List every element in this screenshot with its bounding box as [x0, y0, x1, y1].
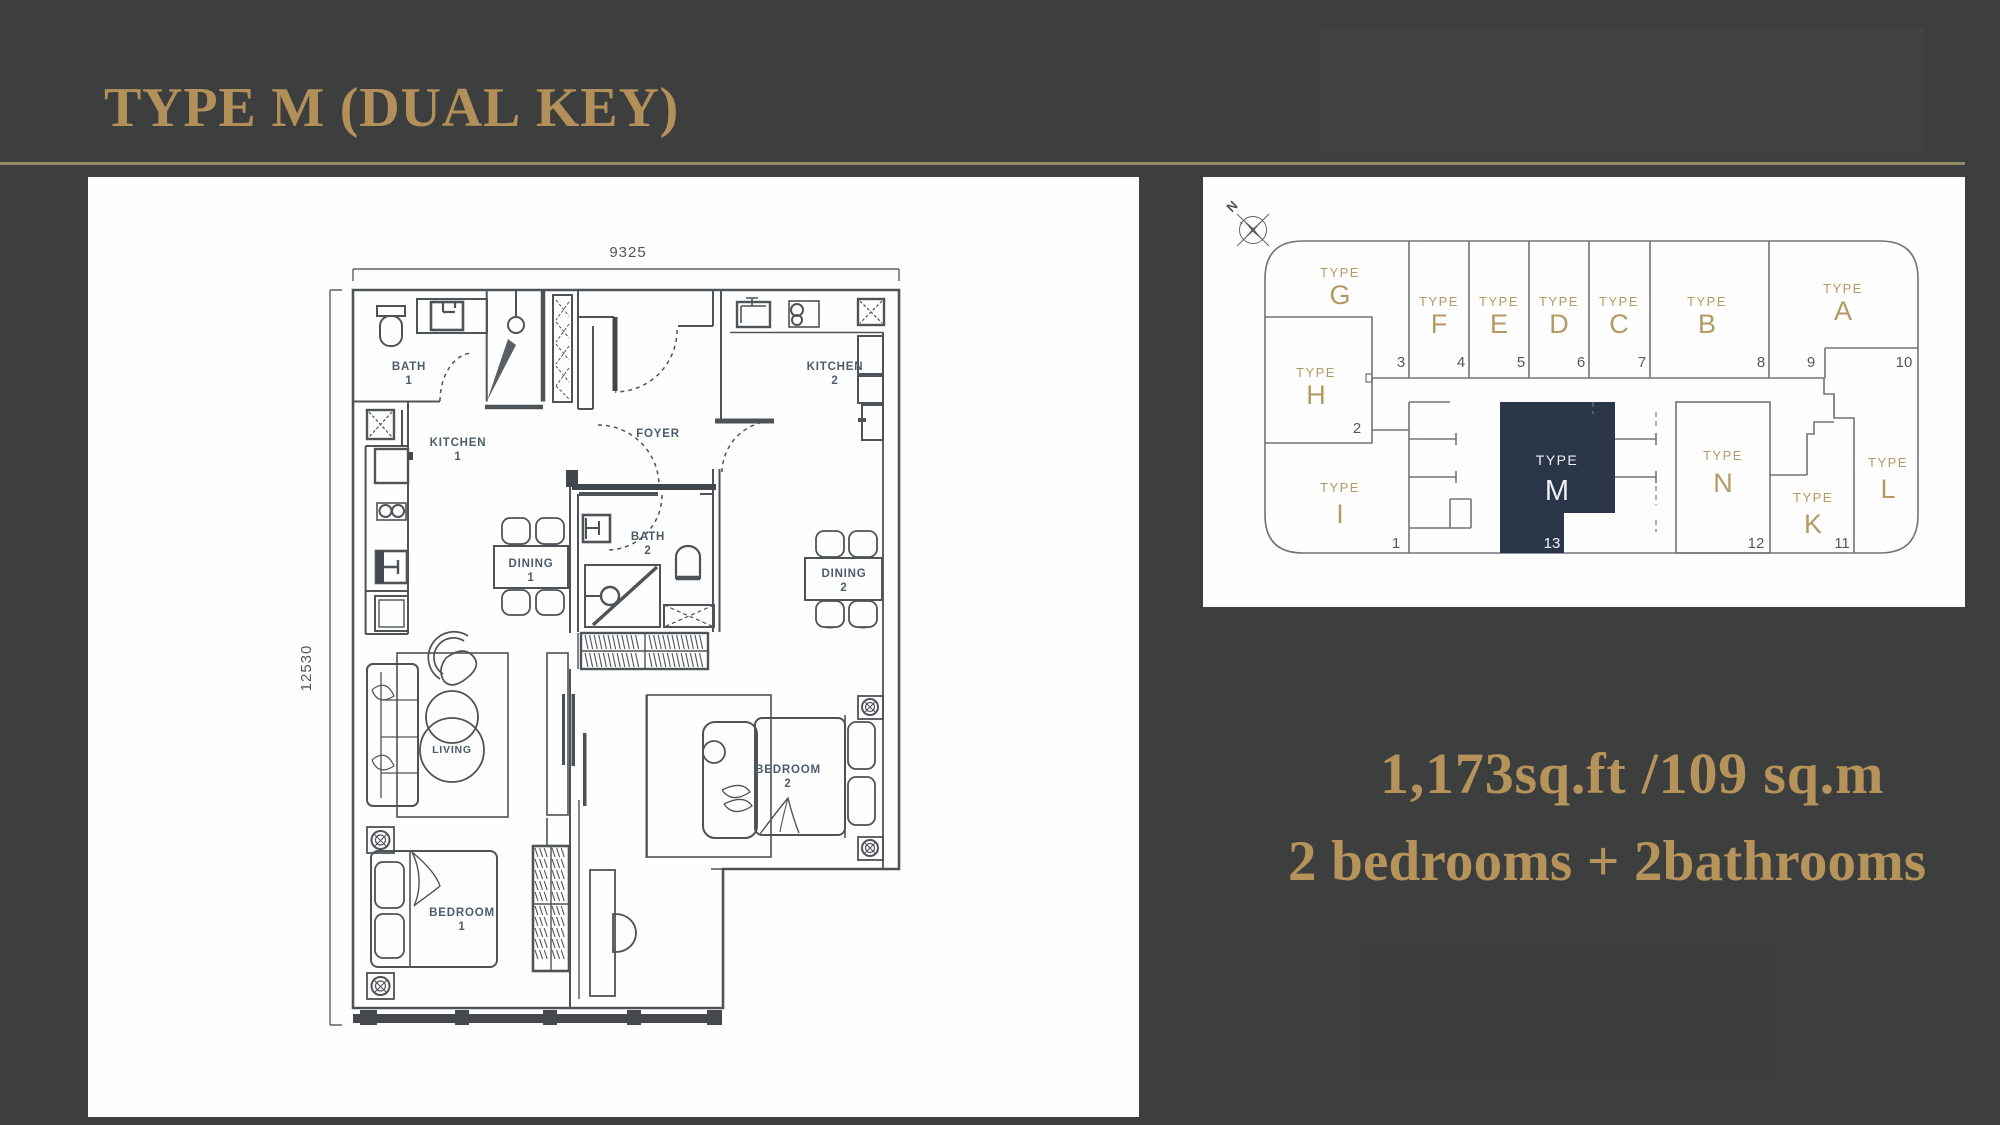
svg-text:1: 1	[458, 921, 465, 933]
svg-text:TYPE: TYPE	[1687, 294, 1727, 309]
svg-text:TYPE: TYPE	[1823, 281, 1863, 296]
svg-text:TYPE: TYPE	[1479, 294, 1519, 309]
svg-text:G: G	[1329, 280, 1350, 310]
svg-text:K: K	[1804, 509, 1822, 539]
svg-text:TYPE: TYPE	[1320, 480, 1360, 495]
svg-text:DINING: DINING	[508, 558, 553, 570]
svg-text:1: 1	[1392, 535, 1400, 552]
svg-text:TYPE: TYPE	[1296, 365, 1336, 380]
svg-text:4: 4	[1457, 354, 1465, 371]
svg-text:2: 2	[840, 582, 847, 594]
svg-text:TYPE: TYPE	[1599, 294, 1639, 309]
svg-text:2: 2	[831, 375, 838, 387]
svg-text:13: 13	[1544, 535, 1561, 552]
svg-text:BATH: BATH	[392, 361, 426, 373]
svg-text:TYPE: TYPE	[1419, 294, 1459, 309]
svg-text:11: 11	[1834, 535, 1850, 552]
svg-text:TYPE: TYPE	[1868, 455, 1908, 470]
svg-text:5: 5	[1517, 354, 1525, 371]
svg-text:BATH: BATH	[631, 531, 665, 543]
svg-text:TYPE: TYPE	[1793, 490, 1833, 505]
svg-text:12530: 12530	[298, 645, 315, 692]
svg-text:BEDROOM: BEDROOM	[755, 764, 821, 776]
svg-text:1: 1	[527, 572, 534, 584]
svg-text:TYPE: TYPE	[1539, 294, 1579, 309]
svg-text:L: L	[1880, 474, 1895, 504]
svg-text:H: H	[1306, 380, 1326, 410]
svg-text:LIVING: LIVING	[432, 744, 472, 756]
svg-text:N: N	[1223, 198, 1240, 215]
svg-text:N: N	[1713, 468, 1733, 498]
svg-text:9325: 9325	[609, 244, 646, 261]
svg-text:A: A	[1834, 296, 1852, 326]
svg-text:BEDROOM: BEDROOM	[429, 907, 495, 919]
svg-text:3: 3	[1397, 354, 1405, 371]
svg-text:6: 6	[1577, 354, 1585, 371]
svg-text:2: 2	[1353, 420, 1361, 437]
svg-text:KITCHEN: KITCHEN	[807, 361, 864, 373]
svg-text:TYPE: TYPE	[1536, 452, 1579, 468]
svg-text:I: I	[1336, 499, 1344, 529]
svg-text:TYPE: TYPE	[1320, 265, 1360, 280]
svg-text:TYPE: TYPE	[1703, 448, 1743, 463]
svg-text:2: 2	[644, 545, 651, 557]
svg-text:D: D	[1549, 309, 1569, 339]
svg-text:9: 9	[1807, 354, 1815, 371]
svg-text:KITCHEN: KITCHEN	[430, 437, 487, 449]
svg-text:FOYER: FOYER	[636, 428, 680, 440]
svg-text:DINING: DINING	[821, 568, 866, 580]
svg-text:B: B	[1698, 309, 1716, 339]
svg-text:8: 8	[1757, 354, 1765, 371]
svg-text:F: F	[1431, 309, 1448, 339]
svg-text:1: 1	[454, 451, 461, 463]
svg-text:C: C	[1609, 309, 1629, 339]
svg-text:7: 7	[1638, 354, 1646, 371]
svg-text:12: 12	[1748, 535, 1765, 552]
svg-text:1: 1	[405, 375, 412, 387]
svg-text:10: 10	[1896, 354, 1913, 371]
svg-text:2: 2	[784, 778, 791, 790]
svg-text:E: E	[1490, 309, 1508, 339]
svg-text:M: M	[1545, 475, 1569, 507]
